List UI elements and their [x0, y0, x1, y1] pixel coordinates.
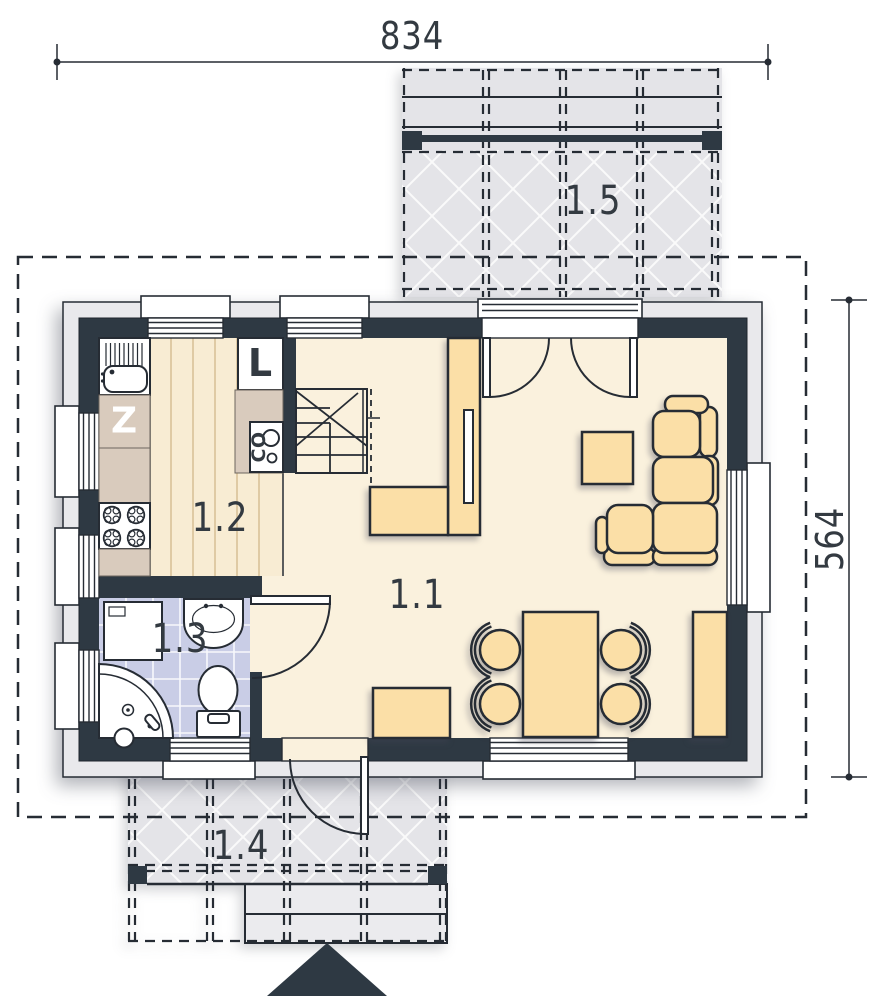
toilet: [199, 666, 238, 714]
window-sill: [55, 643, 79, 729]
terrace-rear-hatching: [402, 150, 722, 297]
kitchen-counter: [99, 549, 150, 576]
boiler: [250, 422, 283, 472]
kitchen-counter: [99, 448, 150, 503]
floor-plan-drawing: [0, 0, 875, 1000]
terrace-front: [128, 762, 447, 943]
dining-table: [523, 612, 598, 737]
low-cabinet: [370, 487, 448, 535]
window-sill: [280, 296, 369, 318]
terrace-beam: [422, 135, 702, 142]
fridge: [238, 338, 283, 390]
door-threshold: [478, 299, 642, 318]
wardrobe-door-panel: [464, 410, 473, 503]
window-sill: [747, 463, 770, 612]
window-sill: [163, 761, 255, 779]
window-sill: [55, 528, 79, 605]
terrace-front-step: [245, 914, 447, 943]
window-bottom-bathroom: [170, 738, 250, 761]
sideboard: [693, 612, 727, 737]
chair: [480, 630, 520, 670]
terrace-post: [702, 131, 722, 150]
terrace-post: [428, 866, 447, 884]
window-bottom-dining: [490, 738, 628, 761]
chair: [601, 684, 641, 724]
floor-plan: 834 564 1.1 1.2 1.3 1.4 1.5 Z L CO: [0, 0, 875, 1000]
door-leaf: [630, 338, 637, 397]
chair: [601, 630, 641, 670]
door-leaf: [483, 338, 490, 397]
window-sill: [55, 406, 79, 497]
chair: [480, 684, 520, 724]
bathroom-sink: [184, 599, 243, 648]
terrace-post: [402, 131, 422, 150]
door-leaf: [361, 757, 368, 834]
door-leaf: [251, 596, 330, 604]
terrace-front-step: [245, 884, 447, 914]
window-sill: [483, 761, 635, 779]
entry-bench: [373, 688, 450, 738]
shower-drain: [115, 729, 134, 748]
dishwasher-cabinet: [99, 395, 150, 448]
sink-bowl: [104, 366, 147, 392]
terrace-rear: [402, 68, 722, 297]
window-sill: [141, 296, 230, 318]
washing-machine: [104, 602, 162, 660]
terrace-post: [128, 866, 147, 884]
coffee-table: [582, 432, 633, 484]
entrance-arrow: [267, 943, 387, 996]
